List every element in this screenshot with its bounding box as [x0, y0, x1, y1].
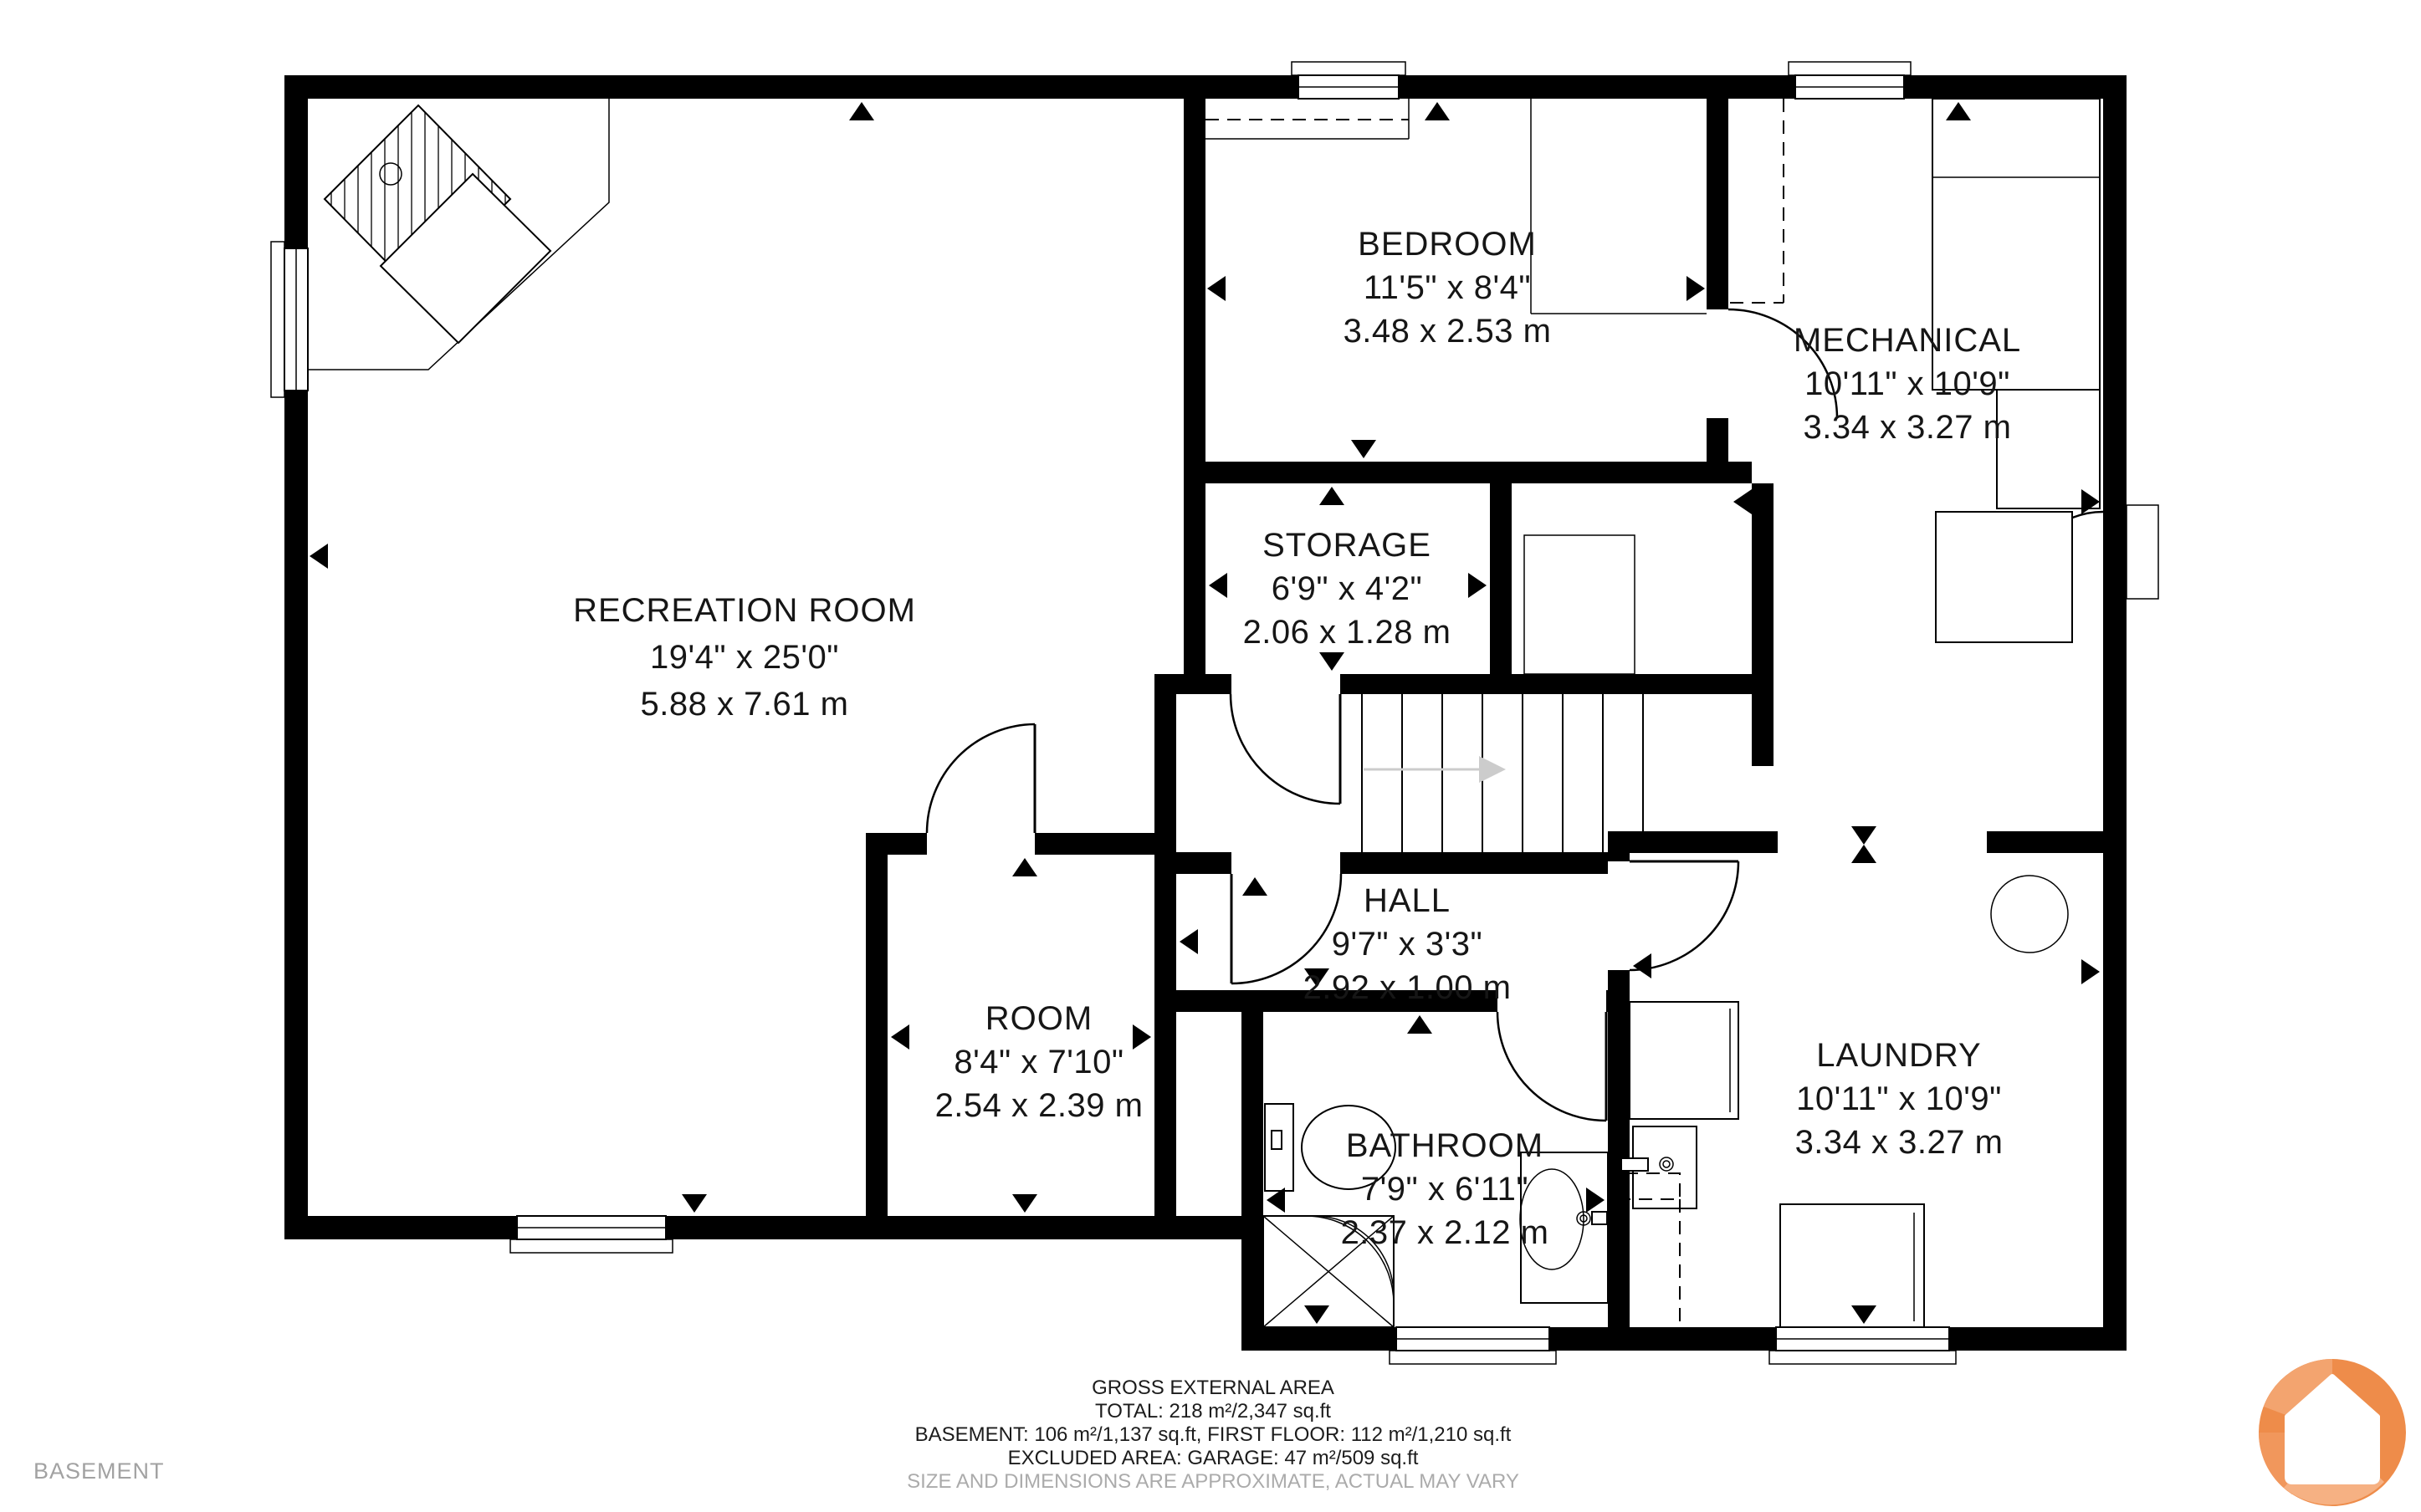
laundry-door — [1630, 861, 1738, 970]
floor-name-label: BASEMENT — [33, 1458, 165, 1484]
room-door — [927, 724, 1035, 833]
room-label-room: ROOM 8'4" x 7'10" 2.54 x 2.39 m — [935, 997, 1144, 1127]
bathroom-window-sill — [1390, 1351, 1556, 1364]
bathroom-door — [1497, 1012, 1606, 1121]
floorplan-page: RECREATION ROOM 19'4" x 25'0" 5.88 x 7.6… — [0, 0, 2421, 1512]
area-summary-disclaimer: SIZE AND DIMENSIONS ARE APPROXIMATE, ACT… — [878, 1470, 1548, 1494]
area-summary-total: TOTAL: 218 m²/2,347 sq.ft — [878, 1400, 1548, 1423]
floorplan-drawing — [0, 0, 2421, 1512]
area-summary: GROSS EXTERNAL AREA TOTAL: 218 m²/2,347 … — [878, 1377, 1548, 1494]
stairs-direction-arrow — [1364, 756, 1506, 783]
fireplace — [308, 99, 609, 370]
mechanical-window-sill — [1789, 62, 1911, 75]
room-label-storage: STORAGE 6'9" x 4'2" 2.06 x 1.28 m — [1243, 524, 1451, 654]
water-heater — [1991, 876, 2068, 953]
firebox — [381, 174, 550, 343]
company-logo — [2259, 1359, 2406, 1506]
area-summary-floors: BASEMENT: 106 m²/1,137 sq.ft, FIRST FLOO… — [878, 1423, 1548, 1447]
bedroom-window-sill — [1292, 62, 1405, 75]
recreation-window-west-sill — [271, 242, 284, 397]
room-label-mechanical: MECHANICAL 10'11" x 10'9" 3.34 x 3.27 m — [1794, 319, 2021, 449]
room-label-recreation-room: RECREATION ROOM 19'4" x 25'0" 5.88 x 7.6… — [573, 587, 916, 728]
dryer — [1780, 1204, 1924, 1327]
room-label-hall: HALL 9'7" x 3'3" 2.92 x 1.00 m — [1303, 879, 1512, 1009]
area-summary-title: GROSS EXTERNAL AREA — [878, 1377, 1548, 1400]
understair-panel — [1524, 535, 1635, 674]
area-summary-excluded: EXCLUDED AREA: GARAGE: 47 m²/509 sq.ft — [878, 1447, 1548, 1470]
washer — [1630, 1002, 1738, 1119]
laundry-sink — [1621, 1126, 1697, 1321]
room-label-bedroom: BEDROOM 11'5" x 8'4" 3.48 x 2.53 m — [1344, 222, 1552, 353]
storage-door — [1231, 694, 1340, 804]
equipment-box — [1936, 512, 2072, 642]
room-label-bathroom: BATHROOM 7'9" x 6'11" 2.37 x 2.12 m — [1341, 1124, 1549, 1254]
room-label-laundry: LAUNDRY 10'11" x 10'9" 3.34 x 3.27 m — [1795, 1034, 2004, 1164]
recreation-window-south-sill — [510, 1239, 673, 1253]
laundry-window-sill — [1769, 1351, 1956, 1364]
